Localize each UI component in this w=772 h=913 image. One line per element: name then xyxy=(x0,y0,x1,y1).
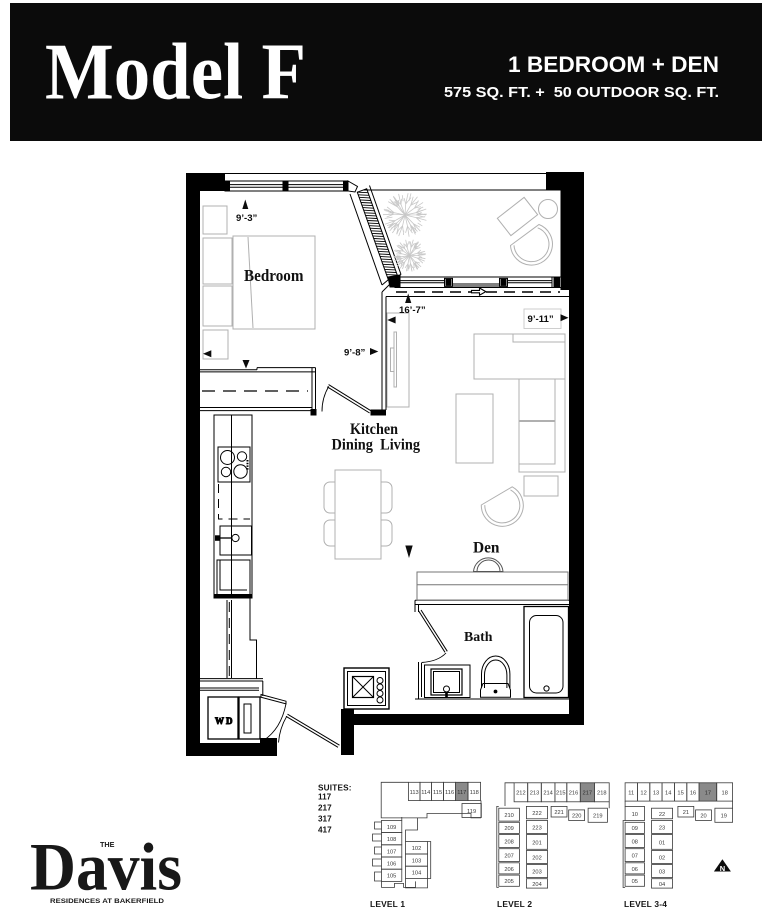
svg-text:202: 202 xyxy=(532,855,542,861)
svg-text:12: 12 xyxy=(640,790,646,796)
svg-text:103: 103 xyxy=(412,859,422,865)
svg-text:18: 18 xyxy=(722,790,728,796)
svg-text:11: 11 xyxy=(628,790,634,796)
svg-text:210: 210 xyxy=(504,813,514,819)
svg-text:03: 03 xyxy=(659,870,665,876)
svg-text:Dining Living: Dining Living xyxy=(332,437,421,454)
svg-text:02: 02 xyxy=(659,855,665,861)
svg-text:215: 215 xyxy=(556,791,566,797)
svg-text:209: 209 xyxy=(504,826,514,832)
svg-text:Model F: Model F xyxy=(45,29,306,117)
svg-text:102: 102 xyxy=(412,846,422,852)
svg-text:01: 01 xyxy=(659,840,665,846)
svg-text:9’-8”: 9’-8” xyxy=(344,348,366,359)
svg-text:14: 14 xyxy=(665,790,671,796)
svg-text:221: 221 xyxy=(554,810,564,816)
svg-text:114: 114 xyxy=(421,790,430,796)
svg-text:107: 107 xyxy=(387,849,397,855)
svg-text:Kitchen: Kitchen xyxy=(350,421,398,438)
svg-text:9’-3”: 9’-3” xyxy=(236,213,258,224)
svg-text:222: 222 xyxy=(532,811,542,817)
svg-text:575 SQ. FT. + 50 OUTDOOR SQ.: 575 SQ. FT. + 50 OUTDOOR SQ. FT. xyxy=(444,84,719,101)
svg-text:16’-7”: 16’-7” xyxy=(399,305,426,316)
svg-text:Bedroom: Bedroom xyxy=(244,266,304,285)
svg-text:115: 115 xyxy=(433,790,442,796)
svg-text:15: 15 xyxy=(677,790,683,796)
svg-text:22: 22 xyxy=(659,812,665,818)
svg-text:105: 105 xyxy=(387,874,397,880)
svg-text:219: 219 xyxy=(593,814,603,820)
svg-text:218: 218 xyxy=(597,791,607,797)
svg-text:216: 216 xyxy=(569,791,579,797)
svg-text:Bath: Bath xyxy=(464,630,493,645)
svg-text:08: 08 xyxy=(632,840,638,846)
svg-text:212: 212 xyxy=(516,791,526,797)
svg-text:217: 217 xyxy=(318,804,332,813)
svg-text:LEVEL 3-4: LEVEL 3-4 xyxy=(624,899,667,909)
svg-text:106: 106 xyxy=(387,862,397,868)
svg-text:LEVEL 1: LEVEL 1 xyxy=(370,899,405,909)
svg-text:206: 206 xyxy=(504,867,514,873)
svg-text:214: 214 xyxy=(543,791,553,797)
svg-text:23: 23 xyxy=(659,825,665,831)
svg-text:113: 113 xyxy=(410,790,419,796)
svg-text:118: 118 xyxy=(470,790,479,796)
svg-text:117: 117 xyxy=(457,790,466,796)
svg-text:116: 116 xyxy=(445,790,454,796)
svg-text:220: 220 xyxy=(572,814,582,820)
svg-text:20: 20 xyxy=(700,814,706,820)
svg-text:203: 203 xyxy=(532,870,542,876)
svg-text:417: 417 xyxy=(318,826,332,835)
svg-text:21: 21 xyxy=(683,810,689,816)
svg-text:05: 05 xyxy=(632,879,638,885)
svg-text:204: 204 xyxy=(532,882,542,888)
svg-text:13: 13 xyxy=(653,790,659,796)
svg-text:10: 10 xyxy=(632,812,638,818)
svg-text:217: 217 xyxy=(583,791,593,797)
svg-text:119: 119 xyxy=(467,809,476,815)
svg-text:108: 108 xyxy=(387,837,397,843)
svg-text:07: 07 xyxy=(632,854,638,860)
svg-text:16: 16 xyxy=(690,790,696,796)
svg-text:WD: WD xyxy=(215,716,235,726)
svg-text:Davis: Davis xyxy=(30,829,182,905)
svg-text:SUITES:: SUITES: xyxy=(318,783,352,792)
svg-text:1 BEDROOM + DEN: 1 BEDROOM + DEN xyxy=(508,52,719,77)
svg-text:9’-11”: 9’-11” xyxy=(528,314,554,325)
svg-text:317: 317 xyxy=(318,815,332,824)
svg-text:Den: Den xyxy=(473,540,500,557)
svg-text:06: 06 xyxy=(632,867,638,873)
svg-text:117: 117 xyxy=(318,793,332,802)
svg-text:213: 213 xyxy=(530,791,540,797)
svg-text:N: N xyxy=(720,864,725,873)
svg-text:207: 207 xyxy=(504,854,514,860)
svg-text:04: 04 xyxy=(659,882,665,888)
svg-text:109: 109 xyxy=(387,825,397,831)
svg-text:RESIDENCES AT BAKERFIELD: RESIDENCES AT BAKERFIELD xyxy=(50,898,164,905)
svg-text:09: 09 xyxy=(632,826,638,832)
svg-text:LEVEL 2: LEVEL 2 xyxy=(497,899,532,909)
svg-text:201: 201 xyxy=(532,840,542,846)
svg-text:208: 208 xyxy=(504,840,514,846)
svg-text:17: 17 xyxy=(705,790,711,796)
svg-text:19: 19 xyxy=(721,814,727,820)
svg-text:223: 223 xyxy=(532,825,542,831)
svg-text:104: 104 xyxy=(412,871,422,877)
svg-text:205: 205 xyxy=(504,879,514,885)
